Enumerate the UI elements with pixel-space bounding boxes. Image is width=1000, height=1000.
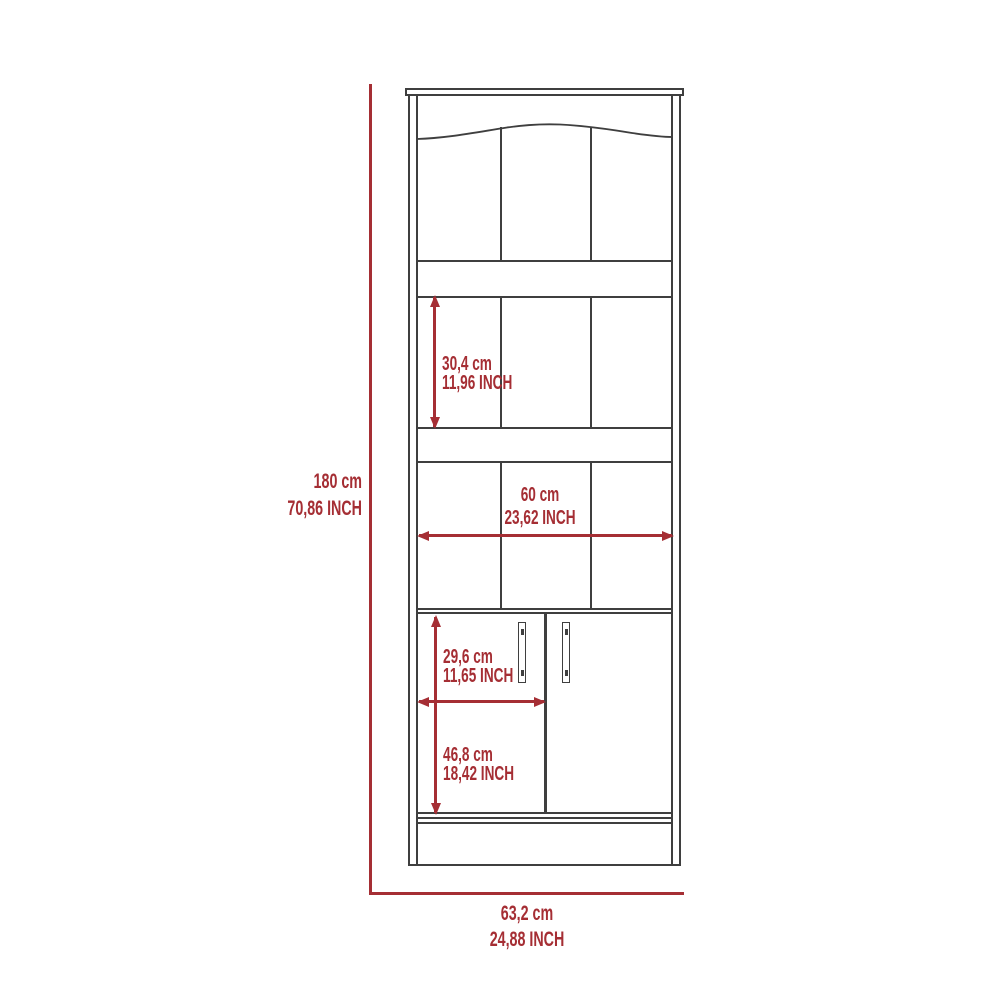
interior-width-dimension-arrow (419, 534, 672, 537)
column-divider (500, 127, 502, 261)
valance-curve (417, 118, 673, 142)
arrow-down-icon (431, 803, 441, 815)
base-inner-edge (418, 822, 671, 824)
arrow-right-icon (534, 697, 546, 707)
shelf-line (418, 461, 671, 463)
overall-width-inch: 24,88 INCH (425, 927, 629, 953)
shelf-height-label: 30,4 cm 11,96 INCH (442, 355, 512, 393)
door-width-label: 29,6 cm 11,65 INCH (443, 648, 513, 686)
overall-width-cm: 63,2 cm (425, 901, 629, 927)
overall-height-inch: 70,86 INCH (226, 495, 362, 522)
handle-end-bottom (565, 670, 568, 676)
right-side-panel (671, 94, 673, 866)
base-top-edge (418, 817, 671, 819)
right-door-handle (562, 622, 570, 683)
shelf-line (418, 260, 671, 262)
left-side-panel (416, 94, 418, 866)
shelf-height-inch: 11,96 INCH (442, 374, 512, 393)
interior-width-label: 60 cm 23,62 INCH (472, 484, 608, 530)
column-divider (590, 296, 592, 428)
door-height-dimension-arrow (434, 617, 437, 813)
overall-width-label: 63,2 cm 24,88 INCH (425, 901, 629, 953)
arrow-left-icon (417, 531, 429, 541)
arrow-right-icon (662, 531, 674, 541)
door-height-label: 46,8 cm 18,42 INCH (443, 746, 514, 784)
column-divider (590, 127, 592, 261)
overall-height-label: 180 cm 70,86 INCH (226, 468, 362, 522)
shelf-line (418, 608, 671, 610)
interior-width-inch: 23,62 INCH (472, 507, 608, 530)
shelf-line (418, 427, 671, 429)
shelf-line (418, 296, 671, 298)
door-height-inch: 18,42 INCH (443, 765, 514, 784)
handle-end-top (521, 629, 524, 635)
door-width-inch: 11,65 INCH (443, 667, 513, 686)
interior-width-cm: 60 cm (472, 484, 608, 507)
door-width-dimension-arrow (419, 700, 544, 703)
arrow-up-icon (431, 615, 441, 627)
shelf-height-dimension-arrow (433, 297, 436, 427)
furniture-dimension-diagram: 180 cm 70,86 INCH 63,2 cm 24,88 INCH 30,… (0, 0, 1000, 1000)
width-extent-line (369, 892, 684, 895)
arrow-up-icon (430, 295, 440, 307)
handle-end-top (565, 629, 568, 635)
door-divider (544, 612, 547, 813)
left-door-handle (518, 622, 526, 683)
handle-end-bottom (521, 670, 524, 676)
overall-height-cm: 180 cm (226, 468, 362, 495)
arrow-down-icon (430, 417, 440, 429)
arrow-left-icon (417, 697, 429, 707)
height-extent-line (369, 84, 372, 895)
